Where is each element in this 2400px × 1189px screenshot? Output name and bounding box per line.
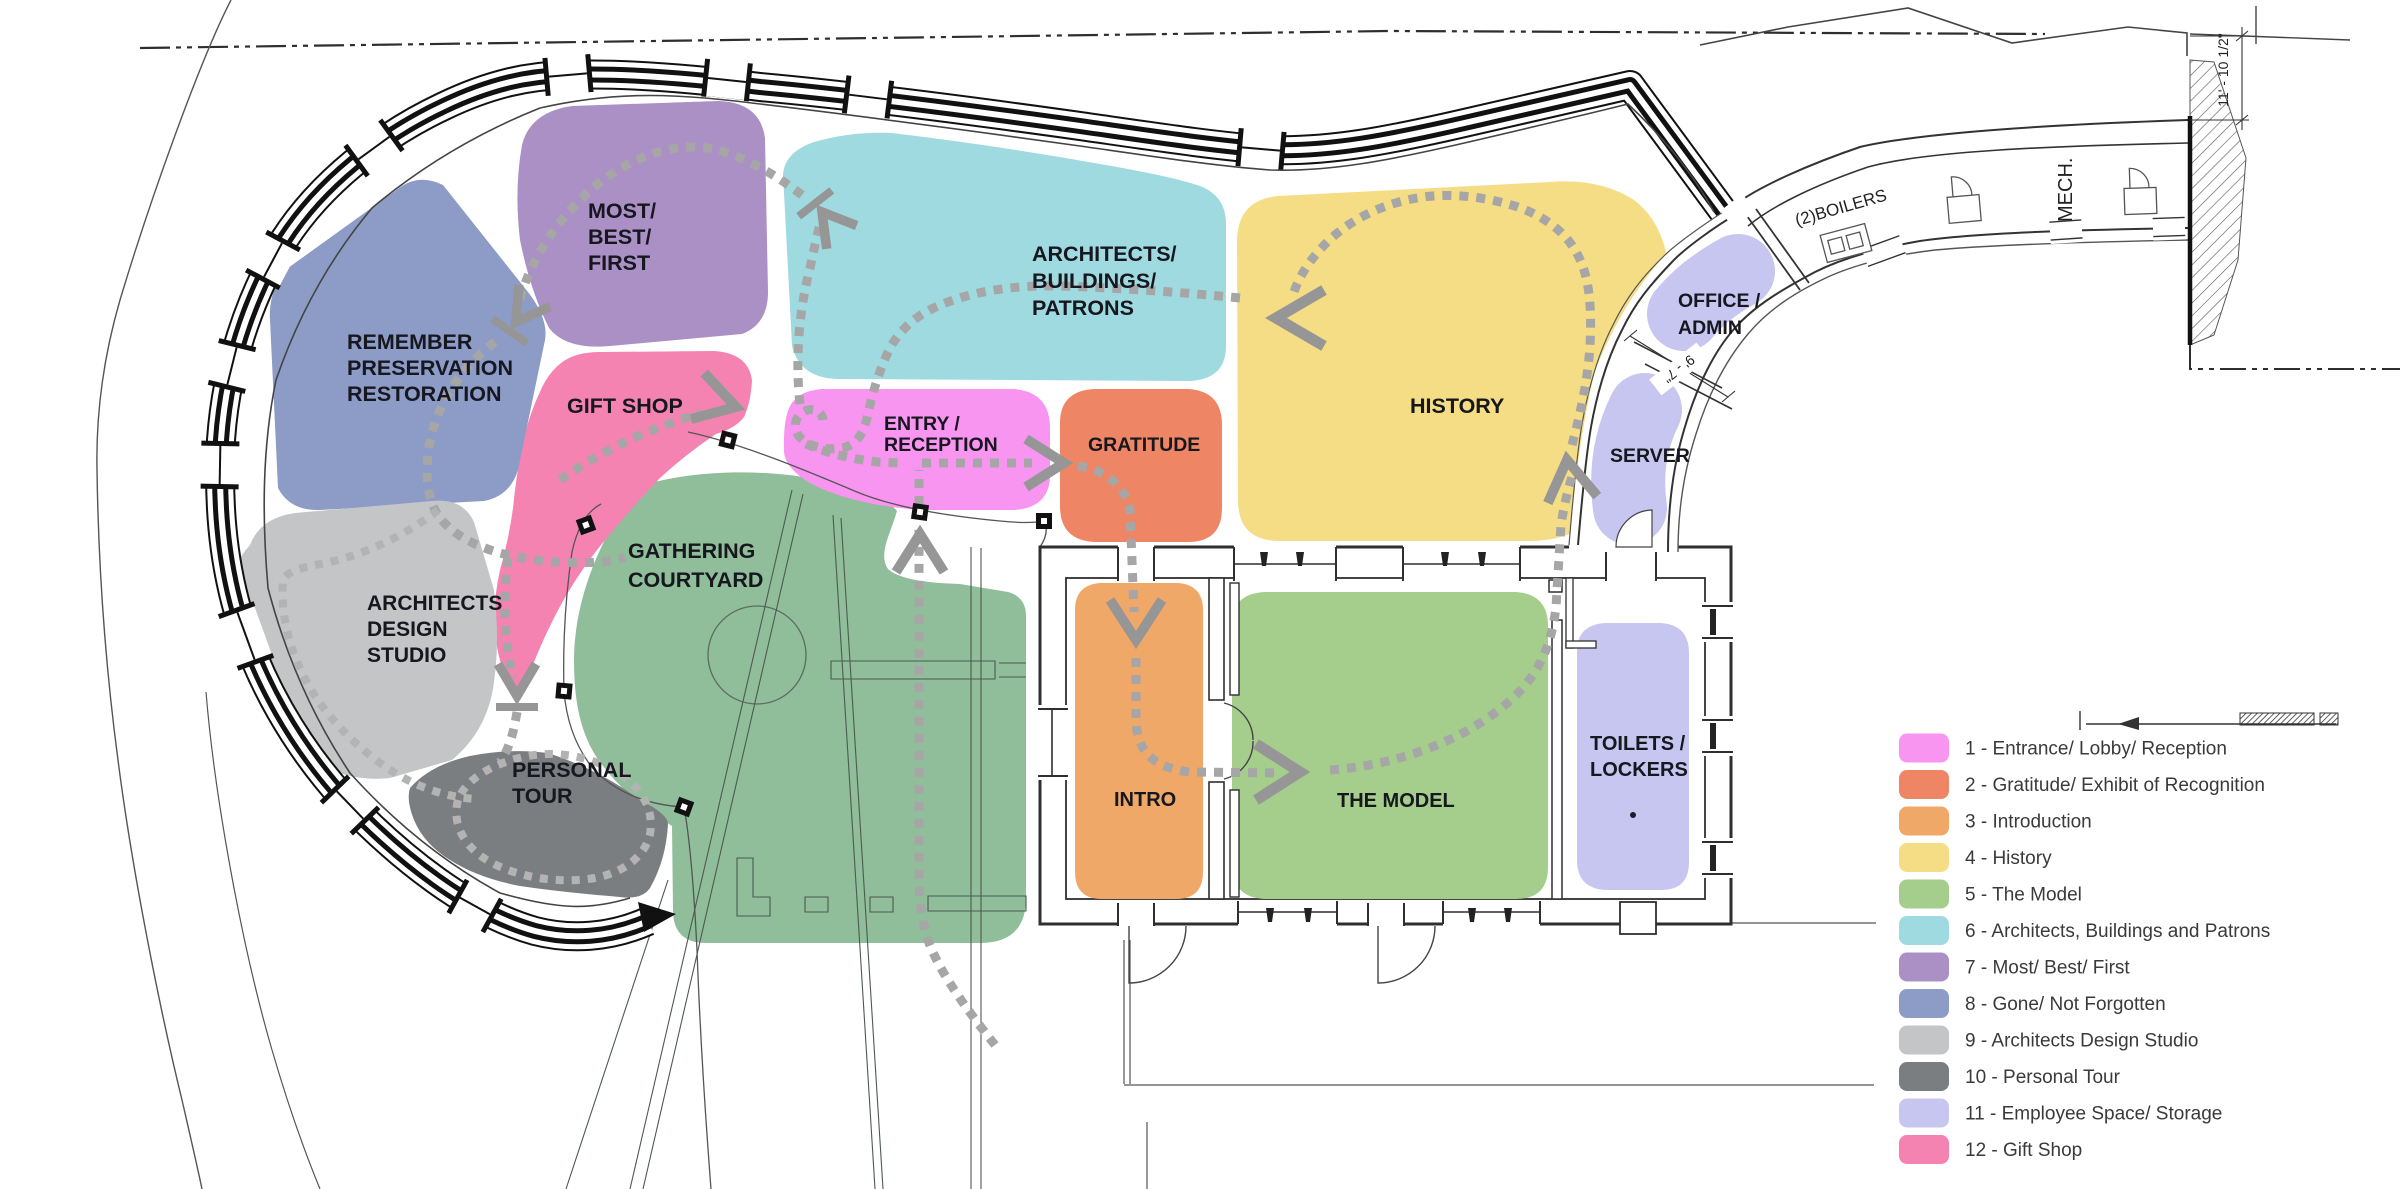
svg-text:RESTORATION: RESTORATION bbox=[347, 382, 502, 406]
svg-text:9 - Architects Design Studio: 9 - Architects Design Studio bbox=[1965, 1031, 2198, 1052]
svg-text:COURTYARD: COURTYARD bbox=[628, 568, 763, 592]
svg-text:PATRONS: PATRONS bbox=[1032, 296, 1134, 320]
svg-text:12 - Gift Shop: 12 - Gift Shop bbox=[1965, 1140, 2082, 1161]
svg-text:STUDIO: STUDIO bbox=[367, 644, 446, 667]
svg-text:SERVER: SERVER bbox=[1610, 445, 1690, 467]
svg-text:ADMIN: ADMIN bbox=[1678, 317, 1742, 339]
svg-text:LOCKERS: LOCKERS bbox=[1590, 759, 1688, 781]
svg-text:6 - Architects, Buildings and: 6 - Architects, Buildings and Patrons bbox=[1965, 921, 2270, 942]
svg-text:PRESERVATION: PRESERVATION bbox=[347, 356, 513, 380]
svg-text:INTRO: INTRO bbox=[1114, 789, 1176, 811]
svg-text:MECH.: MECH. bbox=[2055, 158, 2077, 222]
svg-text:DESIGN: DESIGN bbox=[367, 618, 448, 641]
svg-text:TOUR: TOUR bbox=[512, 784, 573, 808]
svg-text:REMEMBER: REMEMBER bbox=[347, 330, 473, 354]
svg-text:RECEPTION: RECEPTION bbox=[884, 434, 998, 456]
svg-text:7 - Most/ Best/ First: 7 - Most/ Best/ First bbox=[1965, 958, 2130, 979]
svg-text:ARCHITECTS: ARCHITECTS bbox=[367, 592, 502, 615]
svg-text:TOILETS /: TOILETS / bbox=[1590, 733, 1686, 755]
svg-text:8 - Gone/ Not Forgotten: 8 - Gone/ Not Forgotten bbox=[1965, 994, 2166, 1015]
svg-text:11 - Employee Space/ Storage: 11 - Employee Space/ Storage bbox=[1965, 1104, 2222, 1125]
svg-text:PERSONAL: PERSONAL bbox=[512, 758, 631, 782]
svg-text:2 - Gratitude/ Exhibit of Reco: 2 - Gratitude/ Exhibit of Recognition bbox=[1965, 775, 2265, 796]
svg-text:11' - 10 1/2": 11' - 10 1/2" bbox=[2215, 33, 2231, 107]
svg-text:GIFT SHOP: GIFT SHOP bbox=[567, 394, 683, 418]
svg-text:3 - Introduction: 3 - Introduction bbox=[1965, 812, 2092, 833]
svg-text:ENTRY /: ENTRY / bbox=[884, 413, 960, 435]
svg-text:MOST/: MOST/ bbox=[588, 199, 656, 223]
svg-text:5 - The Model: 5 - The Model bbox=[1965, 885, 2082, 906]
svg-text:4 - History: 4 - History bbox=[1965, 848, 2052, 869]
svg-text:BEST/: BEST/ bbox=[588, 225, 651, 249]
svg-text:BUILDINGS/: BUILDINGS/ bbox=[1032, 269, 1156, 293]
svg-text:ARCHITECTS/: ARCHITECTS/ bbox=[1032, 242, 1177, 266]
svg-text:10 - Personal Tour: 10 - Personal Tour bbox=[1965, 1067, 2121, 1088]
svg-text:OFFICE /: OFFICE / bbox=[1678, 290, 1761, 312]
svg-text:FIRST: FIRST bbox=[588, 251, 650, 275]
svg-text:GRATITUDE: GRATITUDE bbox=[1088, 434, 1200, 456]
svg-text:THE MODEL: THE MODEL bbox=[1337, 790, 1455, 812]
svg-text:1 - Entrance/ Lobby/ Reception: 1 - Entrance/ Lobby/ Reception bbox=[1965, 739, 2227, 760]
svg-text:GATHERING: GATHERING bbox=[628, 539, 755, 563]
svg-text:HISTORY: HISTORY bbox=[1410, 394, 1504, 418]
